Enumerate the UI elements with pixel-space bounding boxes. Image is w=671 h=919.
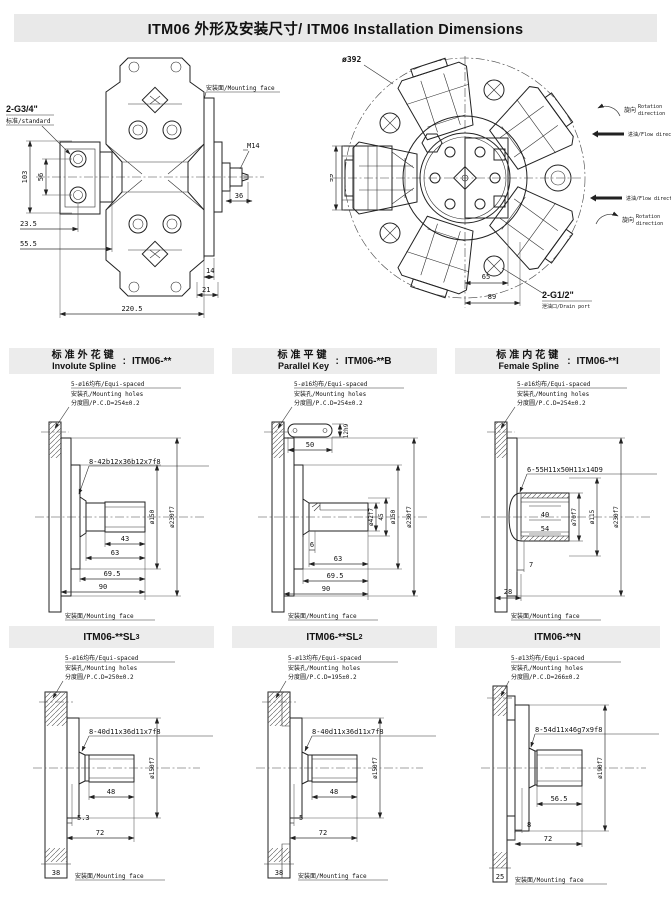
note-line3: 分度圆/P.C.D=254±0.2 [517,399,586,407]
mounting-face-callout: 安装面/Mounting face [75,872,165,880]
header-sep: : [567,356,570,367]
header-involute-spline: 标准外花键Involute Spline : ITM06-** [9,348,214,374]
rotation-flow-legend-bottom: 进油/Flow direction 旋向 Rotation direction [590,195,671,228]
ports-label: 2-G3/4" [6,104,38,114]
dim-56: 56 [37,173,45,181]
dia-230f7: ø230f7 [406,506,413,528]
dim-21: 21 [202,286,210,294]
outer-dia-label: ø392 [342,55,361,64]
dim-99: 99 [330,174,335,182]
dia-190f7: ø190f7 [597,757,604,779]
mounting-face-callout: 安装面/Mounting face [515,876,607,884]
flow-label: 进油/Flow direction [626,195,671,202]
header-model: ITM06-**I [577,356,619,367]
dim-54: 54 [541,525,549,533]
mounting-face-callout: 安装面/Mounting face [288,612,378,620]
header-cn: 标准外花键 [52,351,117,362]
dim-c: 69.5 [327,572,344,580]
mounting-face-callout: 安装面/Mounting face [204,84,280,100]
mounting-face-label: 安装面/Mounting face [511,612,580,620]
note-line3: 分度圆/P.C.D=254±0.2 [294,399,363,407]
dim-36: 36 [235,192,243,200]
note-line1: 5-ø16均布/Equi-spaced [71,380,145,388]
dim-14: 14 [206,267,214,275]
dim-d: 90 [322,585,330,593]
drain-label: 2-G1/2" [542,290,574,300]
header-en: Parallel Key [277,362,329,371]
mounting-face-label: 安装面/Mounting face [206,84,275,92]
shaft-dia: ø42f7 [368,508,375,526]
header-n: ITM06-**N [455,626,660,648]
rotation-arrow-icon [598,106,620,116]
rotation-flow-legend-top: 旋向 Rotation direction 进油/Flow direction [592,104,671,138]
main-drawings-row: 103 56 23.5 55.5 14 21 220.5 36 M14 2-G3… [0,46,671,346]
note-line3: 分度圆/P.C.D=250±0.2 [65,673,134,681]
dim-b: 28 [504,588,512,596]
dim-b: 5 [299,814,303,822]
spline-callout: 8-40d11x36d11x7f8 [82,728,213,751]
flange-section [487,686,529,882]
mounting-face-callout: 安装面/Mounting face [65,612,155,620]
dimensions [284,438,418,600]
dim-c: 69.5 [104,570,121,578]
bottom-header-row: ITM06-**SL3 ITM06-**SL2 ITM06-**N [0,626,671,648]
outer-dia-callout: ø392 [342,55,393,84]
parallel-key-drawing: 5-ø16均布/Equi-spaced 安装孔/Mounting holes 分… [228,374,441,624]
spline-label: 8-40d11x36d11x7f8 [312,728,384,736]
dim-a: 6 [310,541,314,549]
note-line1: 5-ø13均布/Equi-spaced [511,654,585,662]
port-block [60,142,112,214]
model-sub: 3 [136,634,140,641]
spline-callout: 8-54d11x46g7x9f8 [531,726,659,747]
rotation-cn-label: 旋向 [622,216,634,224]
dim-103: 103 [21,171,29,184]
spline-label: 8-54d11x46g7x9f8 [535,726,602,734]
dim-d: 90 [99,583,107,591]
dim-b: 63 [334,555,342,563]
mounting-face-callout: 安装面/Mounting face [298,872,388,880]
dimensions [290,718,384,842]
note-line1: 5-ø16均布/Equi-spaced [294,380,368,388]
dim-a: 56.5 [551,795,568,803]
female-spline-drawing: 5-ø16均布/Equi-spaced 安装孔/Mounting holes 分… [451,374,664,624]
dim-b: 63 [111,549,119,557]
middle-header-row: 标准外花键Involute Spline : ITM06-** 标准平键Para… [0,348,671,374]
dim-a: 48 [107,788,115,796]
spline-label: 6-55H11x50H11x14D9 [527,466,603,474]
note-callout: 5-ø16均布/Equi-spaced 安装孔/Mounting holes 分… [501,380,627,428]
mounting-face-label: 安装面/Mounting face [298,872,367,880]
note-line1: 5-ø13均布/Equi-spaced [288,654,362,662]
dia-230f7: ø230f7 [613,506,620,528]
rotation-cn-label: 旋向 [624,106,636,114]
dimensions [495,438,625,601]
sl3-drawing: 5-ø16均布/Equi-spaced 安装孔/Mounting holes 分… [5,648,218,890]
rotation-en1-label: Rotation [638,104,662,110]
warning-diamond-icon [142,241,167,266]
rotation-en2-label: direction [636,221,663,227]
key-detail [288,424,344,453]
note-line3: 分度圆/P.C.D=254±0.2 [71,399,140,407]
rotation-arrow-icon [596,214,618,224]
flange-section [262,692,302,878]
sl2-drawing: 5-ø13均布/Equi-spaced 安装孔/Mounting holes 分… [228,648,441,890]
dia-230f7: ø230f7 [169,506,176,528]
header-sep: : [123,356,126,367]
header-en: Female Spline [496,362,561,371]
bottom-panels-row: 5-ø16均布/Equi-spaced 安装孔/Mounting holes 分… [0,648,671,890]
spline-callout: 6-55H11x50H11x14D9 [520,466,657,492]
drain-port-callout: 2-G1/2" 泄油口/Drain port [502,268,592,310]
n-drawing: 5-ø13均布/Equi-spaced 安装孔/Mounting holes 分… [451,648,664,890]
note-line3: 分度圆/P.C.D=195±0.2 [288,673,357,681]
header-model: ITM06-**B [345,356,392,367]
dim-b: 8 [527,821,531,829]
dim-c: 72 [544,835,552,843]
dim-d: 38 [52,869,60,877]
header-model: ITM06-** [132,356,171,367]
ports-sub-label: 标准/standard [6,117,51,125]
rotation-en1-label: Rotation [636,214,660,220]
note-callout: 5-ø13均布/Equi-spaced 安装孔/Mounting holes 分… [501,654,621,696]
note-callout: 5-ø16均布/Equi-spaced 安装孔/Mounting holes 分… [55,380,181,428]
header-cn: 标准内花键 [496,351,561,362]
warning-diamond-icon [142,87,167,112]
header-sep: : [335,356,338,367]
mounting-face-label: 安装面/Mounting face [288,612,357,620]
note-line2: 安装孔/Mounting holes [65,664,138,672]
dim-d: 38 [275,869,283,877]
mounting-face-callout: 安装面/Mounting face [511,612,601,620]
note-line1: 5-ø16均布/Equi-spaced [517,380,591,388]
shaft-thread-callout: M14 [240,142,260,169]
dim-c: 72 [96,829,104,837]
note-line2: 安装孔/Mounting holes [71,390,144,398]
dim-a: 7 [529,561,533,569]
note-line2: 安装孔/Mounting holes [511,664,584,672]
dia-150f7: ø150f7 [372,757,379,779]
dimensions [67,718,161,842]
dim-23-5: 23.5 [20,220,37,228]
title-band: ITM06 外形及安装尺寸/ ITM06 Installation Dimens… [14,14,657,42]
front-view-drawing: 99 65 89 ø392 2-G1/2" 泄油口/Drain port 旋向 … [330,46,671,346]
dia-150: ø150 [390,509,397,524]
thread-label: M14 [247,142,260,150]
dim-a: 48 [330,788,338,796]
header-cn: 标准平键 [277,351,329,362]
middle-panels-row: 5-ø16均布/Equi-spaced 安装孔/Mounting holes 分… [0,374,671,624]
dim-65: 65 [482,273,490,281]
note-line1: 5-ø16均布/Equi-spaced [65,654,139,662]
side-view-drawing: 103 56 23.5 55.5 14 21 220.5 36 M14 2-G3… [0,46,330,346]
spline-callout: 8-40d11x36d11x7f8 [305,728,436,751]
dim-89: 89 [488,293,496,301]
dim-55-5: 55.5 [20,240,37,248]
model-base: ITM06-**SL [83,632,135,643]
note-line2: 安装孔/Mounting holes [288,664,361,672]
spline-callout: 8-42b12x36b12x7f8 [79,458,209,494]
dim-d: 25 [496,873,504,881]
model-sub: 2 [359,634,363,641]
dim-a: 43 [121,535,129,543]
note-line2: 安装孔/Mounting holes [294,390,367,398]
note-callout: 5-ø13均布/Equi-spaced 安装孔/Mounting holes 分… [276,654,398,698]
mounting-face-label: 安装面/Mounting face [515,876,584,884]
model-base: ITM06-**SL [306,632,358,643]
valve-block [465,138,508,218]
note-line3: 分度圆/P.C.D=266±0.2 [511,673,580,681]
header-sl3: ITM06-**SL3 [9,626,214,648]
header-en: Involute Spline [52,362,117,371]
drain-sub-label: 泄油口/Drain port [542,303,590,310]
header-female-spline: 标准内花键Female Spline : ITM06-**I [455,348,660,374]
key-length: 50 [306,441,314,449]
spline-label: 8-40d11x36d11x7f8 [89,728,161,736]
mounting-face-label: 安装面/Mounting face [65,612,134,620]
note-callout: 5-ø16均布/Equi-spaced 安装孔/Mounting holes 分… [278,380,404,428]
model-base: ITM06-**N [534,632,581,643]
header-sl2: ITM06-**SL2 [232,626,437,648]
dia-115: ø115 [589,509,596,524]
dim-220-5: 220.5 [121,305,142,313]
flange-section [39,692,79,878]
dia-70f7: ø70f7 [571,508,578,526]
dim-b: 5.3 [77,814,90,822]
dim-40: 40 [541,511,549,519]
dia-150f7: ø150f7 [149,757,156,779]
dia-150: ø150 [149,509,156,524]
page-title: ITM06 外形及安装尺寸/ ITM06 Installation Dimens… [148,18,524,39]
note-callout: 5-ø16均布/Equi-spaced 安装孔/Mounting holes 分… [53,654,175,698]
note-line2: 安装孔/Mounting holes [517,390,590,398]
key-height: 45 [378,513,385,521]
header-parallel-key: 标准平键Parallel Key : ITM06-**B [232,348,437,374]
key-width: 12h9 [343,423,350,438]
involute-spline-drawing: 5-ø16均布/Equi-spaced 安装孔/Mounting holes 分… [5,374,218,624]
rotation-en2-label: direction [638,111,665,117]
flow-label: 进油/Flow direction [628,131,671,138]
datasheet-page: ITM06 外形及安装尺寸/ ITM06 Installation Dimens… [0,14,671,919]
dim-c: 72 [319,829,327,837]
mounting-face-label: 安装面/Mounting face [75,872,144,880]
